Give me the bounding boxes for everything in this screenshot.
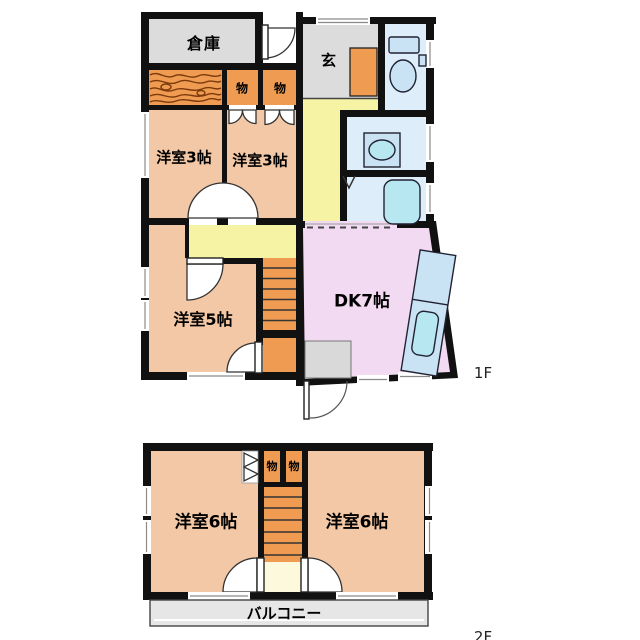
room-label-storage: 倉庫	[187, 30, 221, 54]
front-door-leaf	[262, 25, 268, 59]
backdoor-swing	[310, 381, 347, 418]
washbasin-icon	[364, 133, 400, 167]
room-label-closet2-1f: 物	[274, 80, 286, 97]
doorstep	[305, 341, 351, 378]
floor1-plan	[141, 12, 458, 419]
room-label-western3-right: 洋室3帖	[232, 150, 287, 171]
western6-right-door-leaf	[301, 558, 308, 592]
room-label-entrance: 玄	[321, 50, 337, 71]
hall-floor	[303, 99, 378, 110]
stairs-1f	[263, 258, 296, 372]
room-label-closet2-2f: 物	[289, 458, 300, 474]
room-label-dk: DK7帖	[334, 287, 390, 312]
floor1-label: 1F	[474, 364, 492, 382]
room-label-western5: 洋室5帖	[173, 306, 232, 330]
understair-door-leaf	[255, 342, 262, 373]
shoe-cabinet	[350, 48, 377, 96]
bathtub-icon	[384, 180, 420, 224]
western6-left-door-leaf	[257, 558, 264, 592]
floor2-label: 2F	[474, 628, 492, 640]
room-label-western6-right: 洋室6帖	[326, 508, 389, 533]
hall-corridor-floor	[303, 110, 340, 221]
western5-door-leaf	[187, 258, 223, 264]
backdoor-leaf	[304, 381, 309, 419]
stair-landing-floor	[264, 562, 303, 592]
room-label-western3-left: 洋室3帖	[156, 147, 211, 168]
hallway-floor	[187, 225, 296, 258]
floor-plan-drawing	[0, 0, 640, 640]
room-label-closet1-1f: 物	[236, 80, 248, 97]
room-label-western6-left: 洋室6帖	[175, 508, 238, 533]
understair-storage	[263, 338, 296, 372]
stairs-2f	[264, 487, 302, 562]
room-label-balcony: バルコニー	[247, 603, 322, 624]
folding-closet-door	[242, 451, 258, 483]
floor-plan-page: 倉庫 玄 物 物 洋室3帖 洋室3帖 洋室5帖 DK7帖 1F 物 物 洋室6帖…	[0, 0, 640, 640]
room-label-closet1-2f: 物	[267, 458, 278, 474]
